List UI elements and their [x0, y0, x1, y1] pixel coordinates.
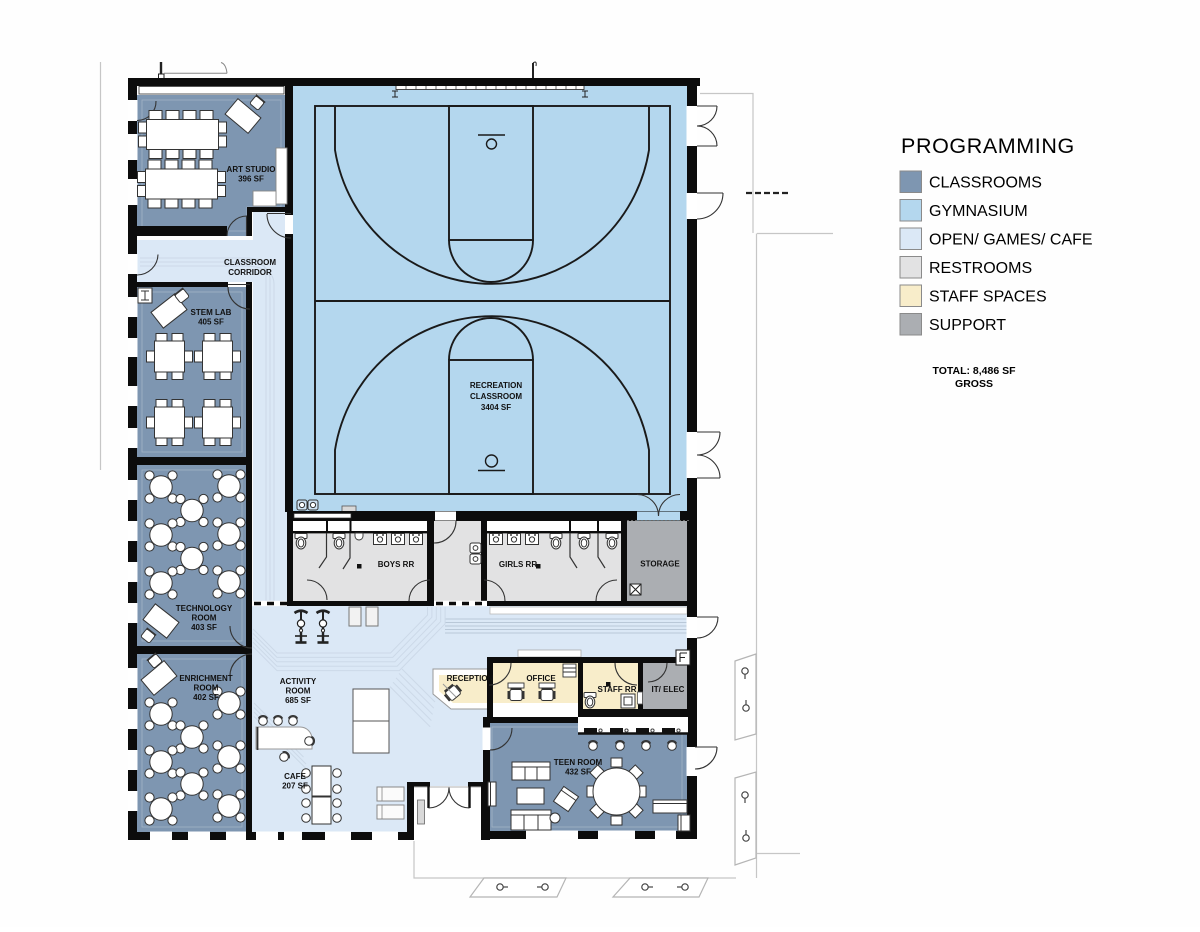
svg-text:685 SF: 685 SF	[285, 696, 311, 705]
svg-text:PROGRAMMING: PROGRAMMING	[901, 134, 1075, 158]
svg-text:OPEN/ GAMES/ CAFE: OPEN/ GAMES/ CAFE	[929, 232, 1093, 249]
svg-text:ROOM: ROOM	[286, 687, 311, 696]
svg-text:432 SF: 432 SF	[565, 768, 591, 777]
svg-text:STAFF RR: STAFF RR	[598, 685, 637, 694]
svg-text:STORAGE: STORAGE	[640, 560, 680, 569]
svg-text:SUPPORT: SUPPORT	[929, 317, 1006, 334]
svg-text:TOTAL: 8,486 SF: TOTAL: 8,486 SF	[932, 365, 1016, 377]
svg-text:3404 SF: 3404 SF	[481, 403, 511, 412]
svg-text:ACTIVITY: ACTIVITY	[280, 677, 317, 686]
svg-text:CLASSROOM: CLASSROOM	[470, 392, 522, 401]
svg-text:BOYS RR: BOYS RR	[378, 560, 415, 569]
svg-text:207 SF: 207 SF	[282, 782, 308, 791]
svg-text:TEEN ROOM: TEEN ROOM	[554, 758, 603, 767]
svg-text:STEM LAB: STEM LAB	[191, 308, 232, 317]
svg-text:TECHNOLOGY: TECHNOLOGY	[176, 604, 233, 613]
svg-text:IT/ ELEC: IT/ ELEC	[652, 685, 685, 694]
svg-text:ROOM: ROOM	[192, 614, 217, 623]
svg-text:OFFICE: OFFICE	[526, 674, 556, 683]
svg-text:ENRICHMENT: ENRICHMENT	[179, 674, 232, 683]
svg-text:402 SF: 402 SF	[193, 693, 219, 702]
svg-text:ROOM: ROOM	[194, 684, 219, 693]
svg-text:GROSS: GROSS	[955, 378, 993, 390]
svg-text:396 SF: 396 SF	[238, 175, 264, 184]
svg-text:405 SF: 405 SF	[198, 318, 224, 327]
svg-text:ART STUDIO: ART STUDIO	[227, 165, 276, 174]
svg-text:GIRLS RR: GIRLS RR	[499, 560, 537, 569]
svg-text:RECEPTION: RECEPTION	[447, 674, 494, 683]
svg-text:CLASSROOM: CLASSROOM	[224, 258, 276, 267]
svg-text:STAFF SPACES: STAFF SPACES	[929, 289, 1047, 306]
svg-text:403 SF: 403 SF	[191, 623, 217, 632]
svg-text:CLASSROOMS: CLASSROOMS	[929, 175, 1042, 192]
svg-text:RECREATION: RECREATION	[470, 381, 523, 390]
svg-text:GYMNASIUM: GYMNASIUM	[929, 203, 1028, 220]
svg-text:CAFE: CAFE	[284, 772, 306, 781]
svg-text:RESTROOMS: RESTROOMS	[929, 260, 1032, 277]
svg-text:CORRIDOR: CORRIDOR	[228, 268, 272, 277]
